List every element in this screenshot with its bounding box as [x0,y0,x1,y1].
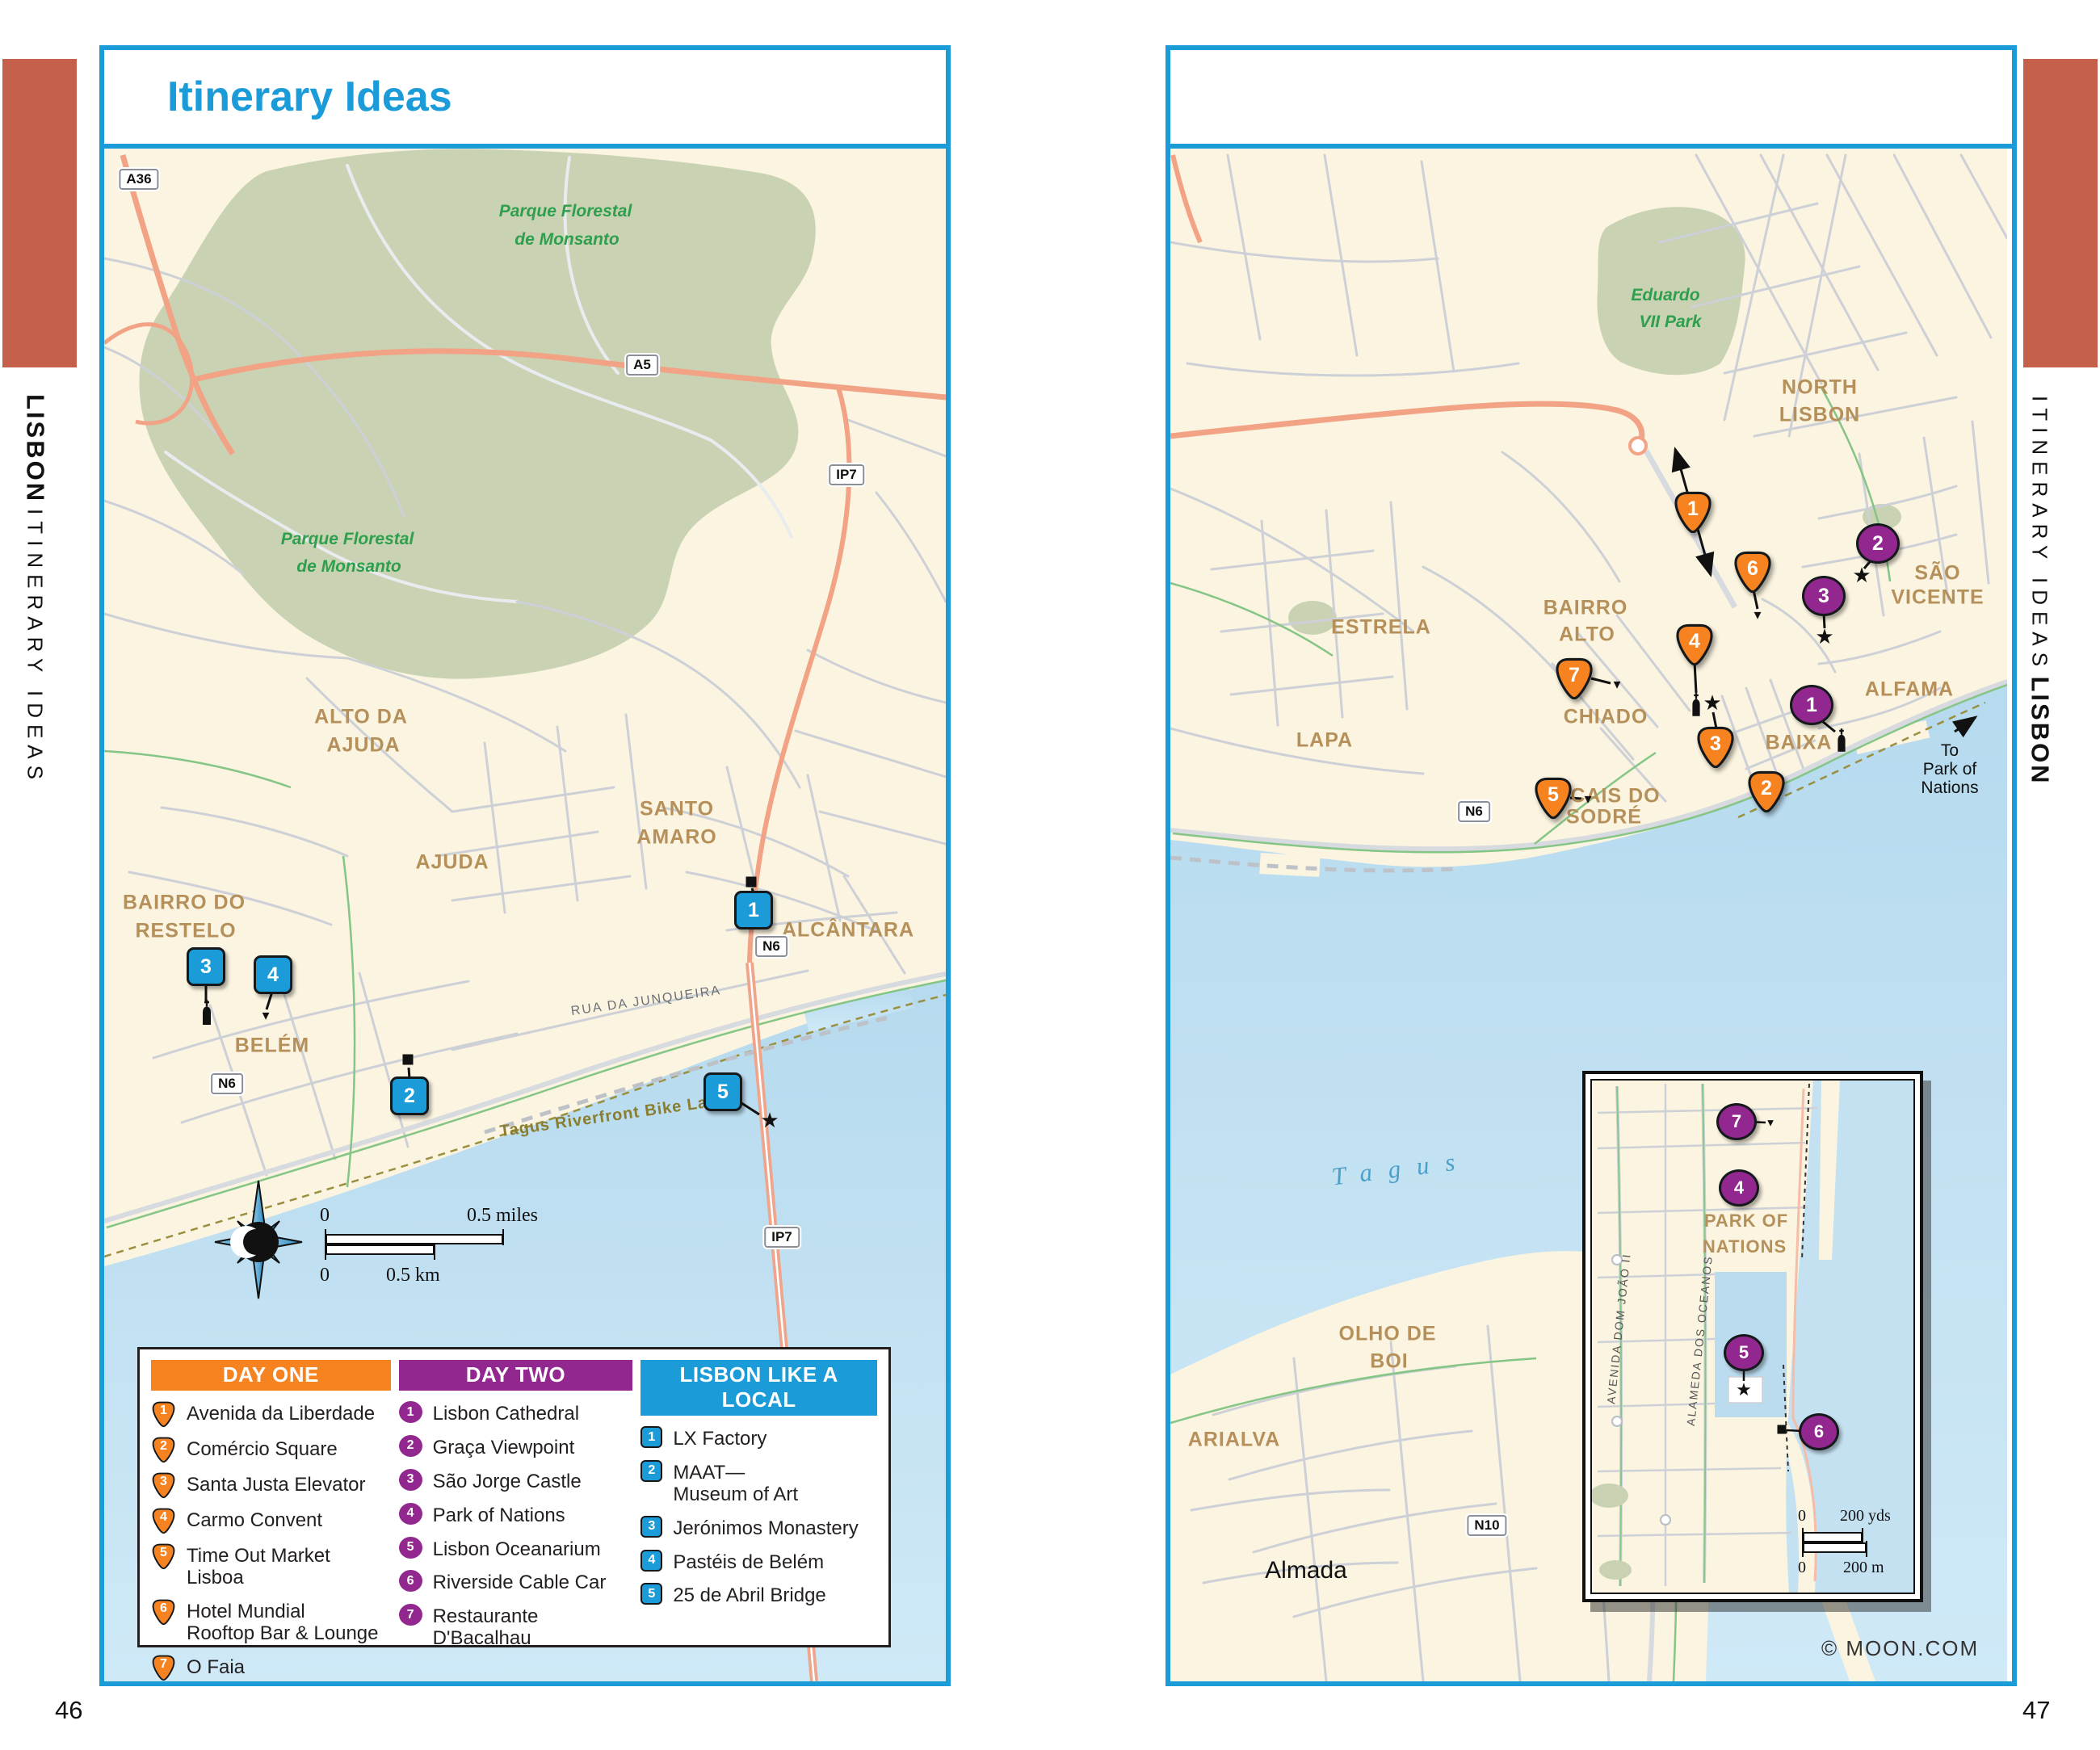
map-marker-local-2: 2 [390,1076,429,1115]
badge-number: 3 [407,1472,414,1487]
road-shield: N6 [211,1073,243,1094]
neighborhood-label: BOI [1370,1350,1408,1374]
map-marker-local-4: 4 [254,955,292,994]
page-title: Itinerary Ideas [167,73,452,121]
legend-label: LX Factory [673,1426,766,1450]
legend-label: Lisbon Cathedral [433,1401,579,1425]
scale-tick [434,1243,435,1260]
scale-km: 0.5 km [386,1265,440,1286]
neighborhood-label: CHIADO [1564,706,1648,729]
neighborhood-label: LAPA [1296,729,1353,753]
book-spread: Itinerary Ideas LISBON ITINERARY IDEAS I… [0,0,2100,1750]
marker-number: 4 [1689,630,1700,653]
neighborhood-label: BELÉM [235,1034,310,1058]
park-label: Eduardo [1631,286,1699,305]
badge-number: 6 [407,1574,414,1588]
church-icon [1832,727,1851,753]
to-park-of-nations-label: To Park of Nations [1921,741,1978,797]
left-edge-text: LISBON ITINERARY IDEAS [21,394,50,786]
map-marker-local-5: 5 [703,1072,742,1111]
inset-scale-yds: 200 yds [1840,1507,1891,1525]
scale-tick [325,1229,326,1260]
legend-label: Comércio Square [187,1437,338,1461]
marker-number: 2 [1761,777,1772,800]
legend-label: Pastéis de Belém [673,1550,824,1574]
edge-title: LISBON [2026,676,2055,785]
marker-number: 3 [1710,732,1721,756]
badge-number: 3 [648,1519,655,1534]
marker-number: 4 [267,963,279,987]
viewpoint-icon: ▼ [1582,794,1594,806]
inset-scale-bar-yds [1803,1532,1863,1542]
legend-label: Restaurante D'Bacalhau [433,1604,539,1650]
badge-number: 2 [407,1438,414,1453]
page-number-left: 46 [55,1696,82,1725]
legend-label: Hotel Mundial Rooftop Bar & Lounge [187,1599,379,1645]
blue-square-icon: 5 [640,1583,662,1605]
badge-number: 7 [151,1657,176,1672]
legend-label: 25 de Abril Bridge [673,1583,825,1607]
to-park-line: To [1921,741,1978,760]
neighborhood-label: RESTELO [135,920,236,943]
neighborhood-label: PARK OF [1704,1211,1788,1232]
legend-item: 5 Time Out Market Lisboa [151,1543,391,1589]
legend-item: 525 de Abril Bridge [640,1583,877,1607]
map-marker-day2-1: 1 [1790,685,1833,725]
badge-number: 5 [407,1540,414,1555]
viewpoint-icon: ▼ [1766,1118,1776,1128]
legend-item: 5Lisbon Oceanarium [399,1537,633,1561]
marker-number: 7 [1569,664,1580,687]
map-marker-day1-3: 3 [1695,726,1736,768]
orange-pin-icon: 7 [151,1655,176,1681]
badge-number: 3 [151,1475,176,1489]
park-label: Parque Florestal [281,530,414,549]
edge-subtitle: ITINERARY IDEAS [2028,394,2052,673]
viewpoint-icon: ▼ [1611,679,1623,691]
sight-square-icon [1778,1425,1787,1434]
badge-number: 1 [151,1404,176,1418]
legend-header-day-one: DAY ONE [151,1360,391,1391]
scale-miles: 0.5 miles [467,1205,538,1227]
star-icon: ★ [760,1110,779,1131]
legend-header-day-two: DAY TWO [399,1360,633,1391]
legend-item: 3Jerónimos Monastery [640,1516,877,1540]
legend-label: Avenida da Liberdade [187,1401,375,1425]
legend-item: 4Pastéis de Belém [640,1550,877,1574]
scale-zero-miles: 0 [320,1205,330,1227]
purple-circle-icon: 3 [399,1469,422,1491]
legend-label: Jerónimos Monastery [673,1516,858,1540]
neighborhood-label: SÃO [1914,562,1960,585]
legend-item: 6 Hotel Mundial Rooftop Bar & Lounge [151,1599,391,1645]
road-shield: A36 [119,169,158,190]
left-page-header: Itinerary Ideas [104,50,946,149]
orange-pin-icon: 4 [151,1508,176,1534]
inset-marker-day2-5: 5 [1724,1334,1764,1371]
marker-number: 2 [404,1085,415,1108]
park-label: Parque Florestal [499,202,632,221]
legend-label: Park of Nations [433,1503,565,1527]
purple-circle-icon: 6 [399,1570,422,1592]
legend-label: O Faia [187,1655,245,1679]
legend-item: 1Lisbon Cathedral [399,1401,633,1425]
inset-scale-bar-m [1803,1542,1867,1553]
orange-pin-icon: 3 [151,1472,176,1498]
scale-tick [1866,1541,1867,1557]
map-marker-day1-1: 1 [1673,491,1713,533]
legend-item: 3 Santa Justa Elevator [151,1472,391,1498]
map-credit: © MOON.COM [1821,1636,1979,1661]
viewpoint-icon: ▼ [1752,610,1764,622]
star-icon: ★ [1736,1381,1752,1399]
purple-circle-icon: 7 [399,1604,422,1626]
compass-rose-icon [212,1177,305,1307]
road-shield: A5 [626,355,658,376]
right-page-header [1170,50,2012,149]
orange-pin-icon: 6 [151,1599,176,1625]
legend-label: Carmo Convent [187,1508,322,1532]
scale-tick [502,1229,504,1245]
map-marker-day1-6: 6 [1732,551,1773,593]
marker-number: 6 [1814,1421,1824,1442]
legend-item: 6Riverside Cable Car [399,1570,633,1594]
road-shield: N6 [1458,801,1490,822]
viewpoint-icon: ▼ [260,1010,272,1022]
scale-bar-km [325,1244,435,1255]
map-legend: DAY ONE 1 Avenida da Liberdade 2 Comérci… [137,1347,891,1647]
edge-title: LISBON [22,394,50,503]
blue-square-icon: 1 [640,1426,662,1448]
blue-square-icon: 2 [640,1460,662,1482]
inset-marker-day2-4: 4 [1719,1169,1759,1207]
badge-number: 2 [151,1439,176,1454]
legend-item: 2MAAT— Museum of Art [640,1460,877,1506]
badge-number: 5 [151,1546,176,1560]
road-shield: IP7 [764,1227,800,1248]
legend-item: 1 Avenida da Liberdade [151,1401,391,1427]
purple-circle-icon: 5 [399,1537,422,1559]
badge-number: 2 [648,1463,655,1478]
neighborhood-label: ESTRELA [1331,616,1431,640]
legend-item: 2Graça Viewpoint [399,1435,633,1459]
legend-label: São Jorge Castle [433,1469,582,1493]
legend-column-day-two: DAY TWO 1Lisbon Cathedral 2Graça Viewpoi… [399,1360,633,1635]
badge-number: 4 [151,1510,176,1525]
map-marker-day1-4: 4 [1674,623,1715,665]
purple-circle-icon: 4 [399,1503,422,1525]
badge-number: 1 [407,1405,414,1420]
badge-number: 7 [407,1608,414,1622]
scale-bar-miles [325,1234,503,1244]
map-marker-day1-7: 7 [1554,657,1594,699]
sight-square-icon [403,1055,414,1065]
park-label: de Monsanto [296,557,401,577]
legend-item: 2 Comércio Square [151,1437,391,1463]
neighborhood-label: OLHO DE [1339,1323,1437,1346]
marker-number: 6 [1747,557,1758,581]
badge-number: 1 [648,1430,655,1445]
road-shield: N10 [1467,1515,1506,1536]
neighborhood-label: NATIONS [1703,1236,1787,1257]
legend-label: MAAT— Museum of Art [673,1460,798,1506]
badge-number: 6 [151,1601,176,1616]
legend-item: 7Restaurante D'Bacalhau [399,1604,633,1650]
purple-circle-icon: 2 [399,1435,422,1457]
neighborhood-label: ALTO DA [314,706,408,729]
neighborhood-label: LISBON [1779,404,1860,427]
road-shield: N6 [755,936,787,957]
right-edge-tab [2023,59,2098,367]
to-park-line: Park of [1921,760,1978,778]
star-icon: ★ [1852,564,1871,585]
legend-column-like-a-local: LISBON LIKE A LOCAL 1LX Factory 2MAAT— M… [640,1360,877,1635]
city-label: Almada [1265,1557,1347,1584]
park-label: de Monsanto [514,230,619,250]
park-label: VII Park [1639,313,1701,332]
legend-item: 7 O Faia [151,1655,391,1681]
scale-zero-km: 0 [320,1265,330,1286]
sight-square-icon [746,877,757,888]
legend-item: 1LX Factory [640,1426,877,1450]
legend-header-like-a-local: LISBON LIKE A LOCAL [640,1360,877,1416]
marker-number: 5 [1548,783,1559,807]
badge-number: 4 [648,1553,655,1567]
neighborhood-label: ALTO [1559,623,1615,647]
map-marker-day1-5: 5 [1533,777,1573,819]
purple-circle-icon: 1 [399,1401,422,1423]
left-edge-tab [2,59,77,367]
star-icon: ★ [1815,626,1833,647]
map-marker-local-1: 1 [734,891,773,930]
page-number-right: 47 [2022,1696,2050,1725]
church-icon [196,998,217,1026]
neighborhood-label: ARIALVA [1188,1429,1280,1452]
badge-number: 4 [407,1506,414,1521]
inset-scale-zero: 0 [1798,1507,1806,1525]
neighborhood-label: VICENTE [1891,586,1984,610]
right-edge-text: ITINERARY IDEAS LISBON [2026,394,2055,786]
legend-label: Lisbon Oceanarium [433,1537,601,1561]
orange-pin-icon: 5 [151,1543,176,1569]
marker-number: 1 [748,899,759,922]
map-marker-day2-2: 2 [1856,523,1900,564]
map-marker-local-3: 3 [187,947,225,986]
scale-tick [1862,1528,1863,1542]
neighborhood-label: BAIXA [1766,732,1833,755]
blue-square-icon: 4 [640,1550,662,1572]
edge-subtitle: ITINERARY IDEAS [23,507,48,786]
legend-label: Graça Viewpoint [433,1435,575,1459]
legend-label: Riverside Cable Car [433,1570,607,1594]
church-icon [1686,691,1706,717]
marker-number: 3 [1818,585,1829,608]
neighborhood-label: SODRÉ [1566,806,1642,829]
marker-number: 2 [1872,532,1884,556]
map-marker-day1-2: 2 [1746,770,1787,812]
marker-number: 4 [1734,1177,1744,1198]
legend-label: Time Out Market Lisboa [187,1543,391,1589]
inset-marker-day2-7: 7 [1716,1103,1757,1140]
marker-number: 5 [717,1081,729,1104]
map-marker-day2-3: 3 [1802,576,1846,616]
neighborhood-label: AMARO [636,826,716,850]
legend-item: 4Park of Nations [399,1503,633,1527]
neighborhood-label: BAIRRO [1543,597,1628,620]
road-shield: IP7 [829,464,864,485]
inset-marker-day2-6: 6 [1799,1413,1839,1450]
neighborhood-label: ALCÂNTARA [782,919,914,942]
marker-number: 1 [1687,497,1699,521]
to-park-line: Nations [1921,778,1978,797]
legend-item: 3São Jorge Castle [399,1469,633,1493]
blue-square-icon: 3 [640,1516,662,1538]
marker-number: 7 [1732,1111,1741,1132]
legend-column-day-one: DAY ONE 1 Avenida da Liberdade 2 Comérci… [151,1360,391,1635]
neighborhood-label: ALFAMA [1865,678,1954,702]
neighborhood-label: AJUDA [326,734,400,757]
marker-number: 3 [200,955,212,979]
neighborhood-label: BAIRRO DO [123,892,246,915]
inset-scale-zero: 0 [1798,1559,1806,1577]
legend-label: Santa Justa Elevator [187,1472,365,1496]
neighborhood-label: AJUDA [415,851,489,875]
marker-number: 5 [1739,1342,1749,1363]
neighborhood-label: NORTH [1782,376,1858,400]
marker-number: 1 [1806,694,1817,717]
inset-scale-m: 200 m [1843,1559,1884,1577]
orange-pin-icon: 2 [151,1437,176,1463]
neighborhood-label: SANTO [640,798,714,821]
scale-tick [1802,1528,1804,1557]
legend-item: 4 Carmo Convent [151,1508,391,1534]
badge-number: 5 [648,1587,655,1601]
orange-pin-icon: 1 [151,1401,176,1427]
